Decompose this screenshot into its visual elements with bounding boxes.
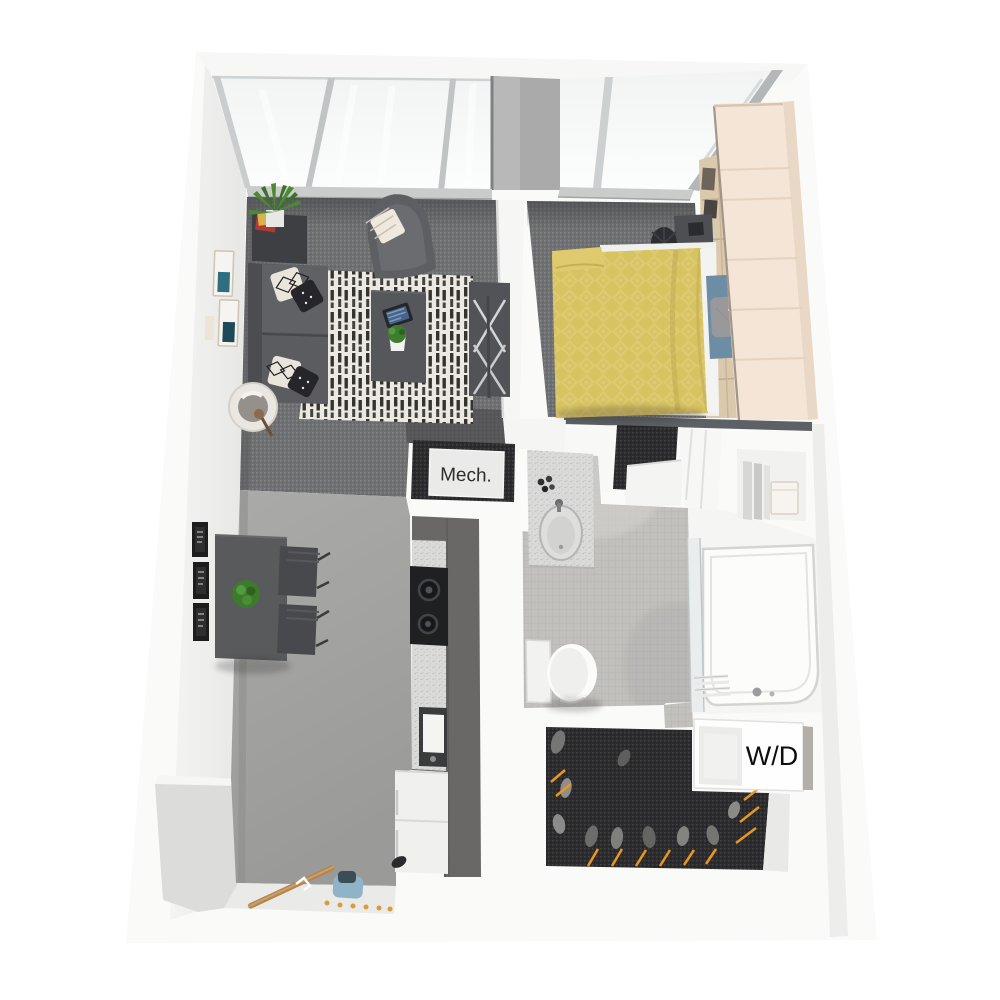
svg-text:Mech.: Mech. — [440, 464, 492, 486]
svg-text:W/D: W/D — [746, 741, 798, 771]
